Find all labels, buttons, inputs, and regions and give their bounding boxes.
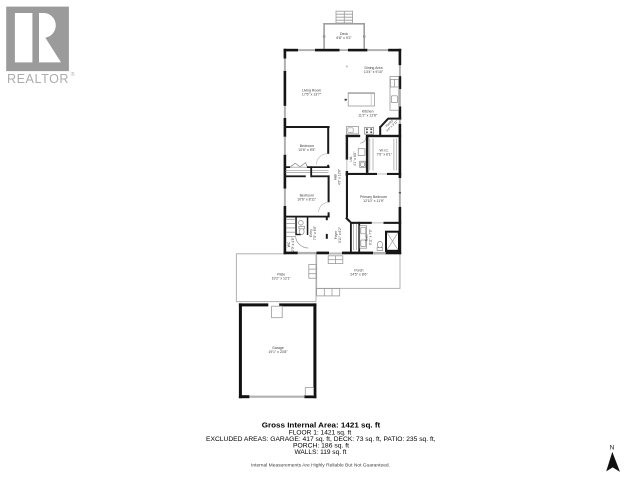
svg-text:4'3" x 13'6": 4'3" x 13'6" — [338, 168, 342, 185]
svg-text:WALLS: 119 sq. ft: WALLS: 119 sq. ft — [295, 449, 347, 456]
svg-text:2'0" x 4'8": 2'0" x 4'8" — [291, 236, 295, 251]
svg-text:24'5" x 8'6": 24'5" x 8'6" — [350, 273, 368, 277]
svg-text:13'4" x 9'10": 13'4" x 9'10" — [364, 70, 384, 74]
svg-text:5'11" x 6'2": 5'11" x 6'2" — [338, 226, 342, 243]
svg-text:7'6" x 6'1": 7'6" x 6'1" — [377, 153, 393, 157]
svg-text:N: N — [610, 445, 615, 452]
svg-text:9'11" x 7'9": 9'11" x 7'9" — [369, 228, 373, 245]
svg-text:®: ® — [71, 71, 75, 78]
svg-text:6'8" x 9'2": 6'8" x 9'2" — [336, 36, 352, 40]
svg-text:Internal Measurements Are High: Internal Measurements Are Highly Reliabl… — [251, 462, 390, 468]
svg-text:7'5" x 6'8": 7'5" x 6'8" — [313, 225, 317, 240]
svg-text:11'2" x 12'8": 11'2" x 12'8" — [358, 114, 378, 118]
svg-text:10'6" x 8'11": 10'6" x 8'11" — [297, 198, 317, 202]
svg-text:4'1" x 6'8": 4'1" x 6'8" — [353, 151, 357, 166]
svg-text:10'6" x 9'5": 10'6" x 9'5" — [298, 148, 316, 152]
svg-text:17'5" x 13'7": 17'5" x 13'7" — [302, 93, 322, 97]
svg-text:19'2" x 12'1": 19'2" x 12'1" — [272, 276, 292, 280]
svg-text:19'1" x 23'8": 19'1" x 23'8" — [268, 350, 288, 354]
svg-text:REALTOR: REALTOR — [7, 72, 69, 86]
svg-text:12'10" x 11'9": 12'10" x 11'9" — [363, 199, 385, 203]
